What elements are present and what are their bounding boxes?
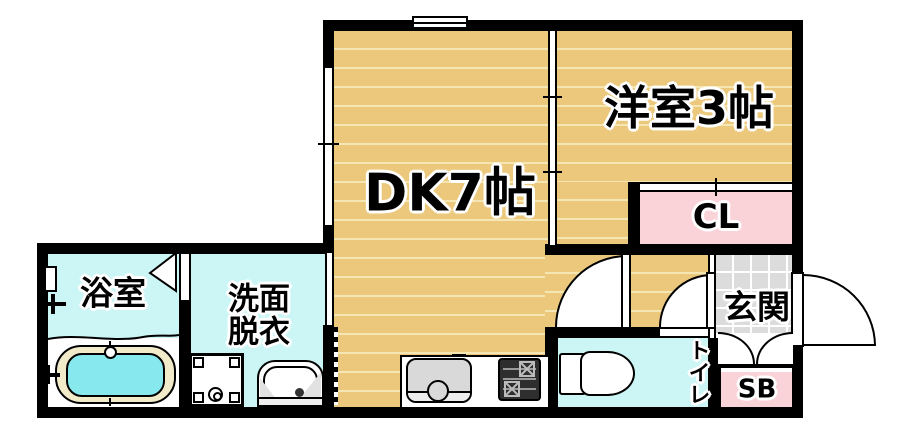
wall-closet-left — [628, 182, 640, 244]
wall-shoebox-left — [716, 368, 721, 407]
closet-label: CL — [693, 200, 740, 236]
floor-plan: DK7帖 洋室3帖 CL 浴室 洗面 脱衣 トイレ 玄関 SB — [0, 0, 919, 433]
washroom-label-line1: 洗面 — [228, 283, 290, 316]
window-dk-top — [412, 16, 468, 29]
wall-toilet-top — [545, 327, 660, 338]
washing-machine-pan — [189, 353, 244, 407]
wall-hall-top — [545, 244, 803, 255]
window-dk-top-mullion — [414, 22, 466, 24]
bathroom-door-opening — [179, 254, 191, 300]
washroom-sliding-door-track — [334, 327, 338, 405]
vanity-drain — [295, 388, 304, 397]
bath-tub-faucet-h — [40, 373, 60, 377]
bathroom-folding-door-icon — [146, 250, 180, 294]
kitchen-sink-drain — [427, 380, 449, 402]
bathtub-basin — [66, 353, 165, 397]
dk-label: DK7帖 — [364, 167, 536, 222]
wall-right-upper — [792, 31, 803, 274]
wall-bath-block-top — [37, 243, 334, 254]
shoe-box-label: SB — [738, 376, 777, 403]
pan-drain-inner — [213, 392, 222, 401]
partition-tick-upper — [543, 96, 562, 98]
washroom-label-line2: 脱衣 — [228, 316, 290, 349]
toilet-door-threshold — [660, 327, 708, 338]
window-dk-left-mullion — [318, 143, 339, 145]
bath-mirror-cabinet — [44, 266, 57, 292]
washroom-label: 洗面 脱衣 — [228, 283, 290, 348]
toilet-bowl — [580, 351, 635, 396]
toilet-door-leaf — [706, 272, 716, 329]
wall-dk-left-upper — [323, 31, 334, 68]
bathtub-tick-bottom — [109, 398, 111, 406]
pan-drain — [208, 387, 223, 402]
front-door-swing-arc — [803, 274, 876, 346]
bath-tub-faucet-v — [46, 365, 50, 384]
western-room-alcove-floor — [557, 182, 628, 244]
partition-tick-lower — [543, 171, 562, 173]
vanity-base — [259, 397, 322, 405]
bath-shower-faucet-h — [44, 302, 66, 306]
wall-bottom — [37, 407, 803, 418]
kitchen-stove — [498, 358, 541, 401]
partition-dk-western — [548, 31, 557, 245]
pan-corner-bl — [193, 392, 204, 403]
entrance-label: 玄関 — [724, 291, 790, 326]
toilet-label: トイレ — [685, 339, 708, 405]
pan-corner-br — [229, 392, 240, 403]
washroom-sliding-door-leaf — [325, 253, 334, 325]
wall-washroom-dk — [323, 325, 334, 407]
closet-door-tick — [715, 178, 717, 196]
bathroom-label: 浴室 — [80, 277, 146, 312]
pan-corner-tl — [193, 357, 204, 368]
dk-door-leaf — [621, 253, 631, 329]
kitchen-faucet — [452, 354, 466, 357]
wall-shoebox-top — [716, 364, 792, 368]
vanity-sink — [257, 360, 324, 407]
bathtub-tick-top — [109, 341, 111, 348]
bath-shower-faucet-v — [51, 294, 55, 314]
window-dk-left — [323, 68, 334, 225]
bath-deck-edge — [48, 331, 179, 345]
western-room-label: 洋室3帖 — [604, 84, 774, 132]
wall-top — [323, 20, 803, 31]
pan-corner-tr — [229, 357, 240, 368]
